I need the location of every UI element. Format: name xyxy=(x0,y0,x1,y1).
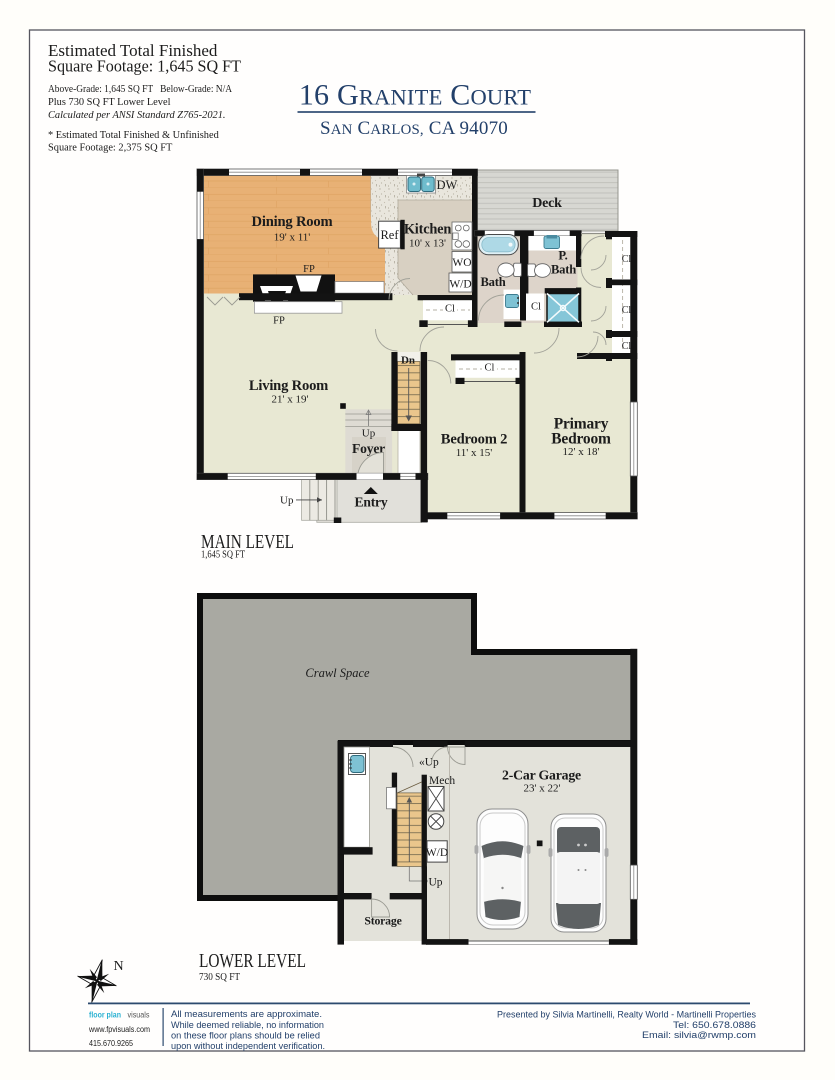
svg-text:Bedroom: Bedroom xyxy=(551,431,611,448)
svg-text:Storage: Storage xyxy=(364,914,401,928)
svg-text:upon without independent verif: upon without independent verification. xyxy=(171,1041,325,1051)
svg-text:Plus 730 SQ FT Lower Level: Plus 730 SQ FT Lower Level xyxy=(48,97,171,108)
svg-text:Entry: Entry xyxy=(355,495,388,510)
svg-text:FP: FP xyxy=(273,316,285,327)
svg-text:Tel: 650.678.0886: Tel: 650.678.0886 xyxy=(673,1020,756,1030)
svg-text:19' x 11': 19' x 11' xyxy=(274,232,311,244)
svg-text:All measurements are approxima: All measurements are approximate. xyxy=(171,1009,322,1019)
svg-text:Cl: Cl xyxy=(445,304,455,315)
svg-text:Bedroom 2: Bedroom 2 xyxy=(441,432,507,448)
svg-text:N: N xyxy=(114,959,124,974)
svg-text:11' x 15': 11' x 15' xyxy=(456,447,493,459)
svg-text:21' x 19': 21' x 19' xyxy=(272,394,309,406)
svg-text:Email: silvia@rwmp.com: Email: silvia@rwmp.com xyxy=(642,1030,756,1040)
svg-text:415.670.9265: 415.670.9265 xyxy=(89,1038,133,1048)
svg-text:Above-Grade: 1,645 SQ FT Bel: Above-Grade: 1,645 SQ FT Below-Grade: N/… xyxy=(48,84,232,95)
svg-text:Dn: Dn xyxy=(401,355,415,367)
svg-text:10' x 13': 10' x 13' xyxy=(409,238,446,250)
svg-text:Bath: Bath xyxy=(480,275,505,289)
svg-text:www.fpvisuals.com: www.fpvisuals.com xyxy=(88,1024,150,1034)
svg-text:Cl: Cl xyxy=(622,341,632,352)
svg-text:Calculated per ANSI Standard Z: Calculated per ANSI Standard Z765-2021. xyxy=(48,110,226,121)
svg-text:1,645 SQ FT: 1,645 SQ FT xyxy=(201,550,245,561)
svg-text:Deck: Deck xyxy=(532,196,562,211)
svg-text:Up: Up xyxy=(280,495,294,507)
svg-text:23' x 22': 23' x 22' xyxy=(524,783,561,795)
svg-text:«Up: «Up xyxy=(419,757,439,769)
svg-text:Dining Room: Dining Room xyxy=(252,214,333,230)
svg-text:FP: FP xyxy=(303,264,315,275)
svg-text:Living Room: Living Room xyxy=(249,378,328,394)
svg-text:Mech: Mech xyxy=(429,775,455,787)
svg-text:LOWER LEVEL: LOWER LEVEL xyxy=(199,951,306,972)
svg-text:Up: Up xyxy=(362,428,376,440)
svg-text:Square Footage: 2,375 SQ FT: Square Footage: 2,375 SQ FT xyxy=(48,143,173,154)
svg-text:Bath: Bath xyxy=(551,263,576,277)
svg-text:Cl: Cl xyxy=(485,363,495,374)
svg-text:Cl: Cl xyxy=(622,305,632,316)
svg-text:12' x 18': 12' x 18' xyxy=(563,446,600,458)
svg-text:Crawl Space: Crawl Space xyxy=(305,666,370,680)
svg-text:P.: P. xyxy=(558,249,567,263)
svg-text:visuals: visuals xyxy=(128,1011,150,1020)
svg-text:W/D: W/D xyxy=(426,847,448,859)
svg-text:Cl: Cl xyxy=(531,302,541,313)
svg-text:730 SQ FT: 730 SQ FT xyxy=(199,972,241,983)
svg-text:Kitchen: Kitchen xyxy=(404,222,452,238)
svg-text:DW: DW xyxy=(437,178,458,192)
svg-text:W/D: W/D xyxy=(449,279,471,291)
svg-text:SAN CARLOS, CA 94070: SAN CARLOS, CA 94070 xyxy=(320,118,508,139)
svg-text:on these floor plans should be: on these floor plans should be relied xyxy=(171,1030,320,1040)
svg-text:Up: Up xyxy=(429,877,443,889)
svg-text:Ref: Ref xyxy=(380,228,399,242)
svg-text:* Estimated Total Finished & U: * Estimated Total Finished & Unfinished xyxy=(48,130,220,141)
svg-text:Square Footage: 1,645 SQ FT: Square Footage: 1,645 SQ FT xyxy=(48,57,242,76)
svg-text:WO: WO xyxy=(452,257,471,269)
svg-text:While deemed reliable, no info: While deemed reliable, no information xyxy=(171,1020,324,1030)
svg-text:Cl: Cl xyxy=(622,254,632,265)
svg-text:2-Car Garage: 2-Car Garage xyxy=(502,768,581,783)
svg-text:floor plan: floor plan xyxy=(89,1010,121,1020)
svg-text:Presented by Silvia Martinelli: Presented by Silvia Martinelli, Realty W… xyxy=(497,1010,757,1020)
